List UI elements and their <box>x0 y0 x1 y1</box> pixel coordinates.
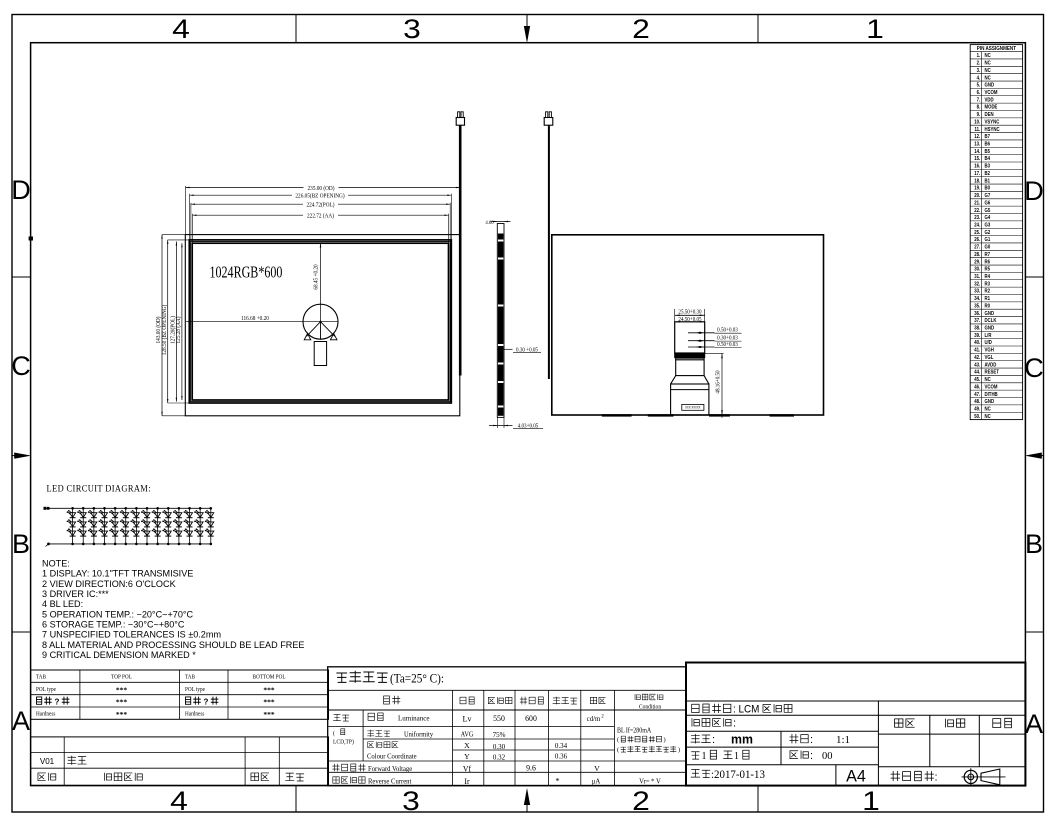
svg-text:B5: B5 <box>985 148 991 155</box>
svg-text:BOTTOM POL: BOTTOM POL <box>252 674 286 680</box>
svg-text:Colour Coordinate: Colour Coordinate <box>367 752 417 760</box>
svg-text:6.: 6. <box>977 90 981 97</box>
svg-text::: : <box>810 734 813 746</box>
svg-text:R2: R2 <box>985 288 991 295</box>
svg-text::: : <box>935 771 938 783</box>
svg-text:DCLK: DCLK <box>985 318 997 325</box>
svg-text:46.: 46. <box>974 384 981 391</box>
svg-text:19.: 19. <box>974 185 981 192</box>
svg-text:23.: 23. <box>974 215 981 222</box>
svg-text:: LCM: : LCM <box>733 704 759 716</box>
svg-text:18.: 18. <box>974 178 981 185</box>
svg-text:R1: R1 <box>985 296 991 303</box>
svg-text:GND: GND <box>985 310 995 317</box>
svg-text::2017-01-13: :2017-01-13 <box>711 769 765 781</box>
svg-text:40.: 40. <box>974 340 981 347</box>
svg-text:(: ( <box>617 747 619 754</box>
svg-text:75%: 75% <box>493 729 506 738</box>
svg-text:DITHB: DITHB <box>985 391 999 398</box>
svg-text:B4: B4 <box>985 156 991 163</box>
svg-text:U/D: U/D <box>985 340 993 347</box>
svg-text:Y: Y <box>464 752 470 761</box>
svg-text:G1: G1 <box>985 237 991 244</box>
svg-text:Hardness: Hardness <box>185 711 204 717</box>
svg-text:10.: 10. <box>974 119 981 126</box>
svg-text:B: B <box>12 529 30 559</box>
svg-text:4 BL LED:: 4 BL LED: <box>42 599 83 609</box>
svg-text:R6: R6 <box>985 259 991 266</box>
svg-text:***: *** <box>263 710 275 719</box>
svg-text:42.: 42. <box>974 355 981 362</box>
svg-text:3: 3 <box>403 14 421 44</box>
svg-text:30.: 30. <box>974 266 981 273</box>
svg-text:RESET: RESET <box>985 369 999 376</box>
svg-text:X: X <box>464 741 470 750</box>
svg-text:49.: 49. <box>974 406 981 413</box>
svg-text:44.: 44. <box>974 369 981 376</box>
svg-text:VSYNC: VSYNC <box>985 119 1000 126</box>
svg-text:Luminance: Luminance <box>398 713 430 722</box>
svg-text:A: A <box>1025 709 1043 739</box>
svg-text:R5: R5 <box>985 266 991 273</box>
svg-text:MODE: MODE <box>985 104 999 111</box>
svg-text:16.: 16. <box>974 163 981 170</box>
svg-text:GND: GND <box>985 325 995 332</box>
svg-text:25.50+0.30: 25.50+0.30 <box>678 309 701 315</box>
svg-text:226.05(BZ OPENING): 226.05(BZ OPENING) <box>295 192 344 200</box>
svg-text:D: D <box>1024 176 1044 206</box>
svg-text:LED CIRCUIT DIAGRAM:: LED CIRCUIT DIAGRAM: <box>47 483 151 493</box>
svg-text:00: 00 <box>822 751 833 762</box>
svg-text:VGL: VGL <box>985 355 994 362</box>
svg-text:0.32: 0.32 <box>493 752 506 761</box>
svg-text:1.: 1. <box>977 53 981 60</box>
svg-text:G7: G7 <box>985 193 991 200</box>
svg-text:39.: 39. <box>974 332 981 339</box>
svg-text:NC: NC <box>985 377 992 384</box>
svg-text:***: *** <box>263 685 275 694</box>
svg-text:116.68 +0.20: 116.68 +0.20 <box>241 316 269 322</box>
svg-text:5.: 5. <box>977 82 981 89</box>
svg-text:Forward Voltage: Forward Voltage <box>368 765 412 773</box>
svg-text:Condition: Condition <box>639 704 661 710</box>
svg-text:37.: 37. <box>974 318 981 325</box>
svg-text:48.: 48. <box>974 399 981 406</box>
svg-text:POL type: POL type <box>185 687 205 693</box>
svg-text:B6: B6 <box>985 141 991 148</box>
svg-text:12.: 12. <box>974 134 981 141</box>
svg-text:cd/m: cd/m <box>587 715 601 723</box>
svg-text:2 VIEW DIRECTION:6 O'CLOCK: 2 VIEW DIRECTION:6 O'CLOCK <box>42 579 176 589</box>
svg-text:G3: G3 <box>985 222 991 229</box>
svg-text:8.: 8. <box>977 104 981 111</box>
svg-text:Hardness: Hardness <box>36 711 55 717</box>
svg-text:24.: 24. <box>974 222 981 229</box>
svg-text:26.: 26. <box>974 237 981 244</box>
svg-text:4: 4 <box>172 14 190 44</box>
svg-text:(: ( <box>333 730 335 737</box>
svg-text:235.00 (OD): 235.00 (OD) <box>308 184 335 192</box>
svg-text:38.: 38. <box>974 325 981 332</box>
svg-text:9.: 9. <box>977 112 981 119</box>
svg-text:NC: NC <box>985 68 992 75</box>
svg-text:***: *** <box>116 698 128 707</box>
svg-text:NC: NC <box>985 413 992 420</box>
svg-text:V: V <box>594 764 600 773</box>
svg-text:1 DISPLAY: 10.1"TFT TRANSMI: 1 DISPLAY: 10.1"TFT TRANSMISIVE <box>42 569 193 579</box>
svg-text:): ) <box>664 737 666 744</box>
svg-text:2: 2 <box>632 14 650 44</box>
svg-text:550: 550 <box>493 714 505 723</box>
svg-text:224.72(POL): 224.72(POL) <box>307 201 335 209</box>
svg-text:B2: B2 <box>985 171 991 178</box>
svg-text:C: C <box>11 351 31 381</box>
svg-text:7.: 7. <box>977 97 981 104</box>
svg-text:TAB: TAB <box>185 674 195 680</box>
svg-text:XXX-XXXXX: XXX-XXXXX <box>685 405 700 409</box>
svg-text:29.: 29. <box>974 259 981 266</box>
svg-text::: : <box>712 734 715 746</box>
svg-text:C: C <box>1024 353 1044 383</box>
svg-text:?: ? <box>204 697 209 706</box>
svg-text:mm: mm <box>731 732 753 746</box>
svg-text:(Ta=25° C):: (Ta=25° C): <box>390 671 444 686</box>
svg-text:GND: GND <box>985 82 995 89</box>
svg-text:A: A <box>12 706 30 736</box>
svg-text:11.: 11. <box>974 126 980 133</box>
svg-text:G6: G6 <box>985 200 991 207</box>
svg-text:NC: NC <box>985 75 992 82</box>
svg-text::: : <box>733 718 736 730</box>
svg-text:2: 2 <box>601 715 604 720</box>
svg-text:Vf: Vf <box>463 764 472 773</box>
svg-text:VDD: VDD <box>985 97 995 104</box>
svg-text:G0: G0 <box>985 244 991 251</box>
svg-text:R4: R4 <box>985 274 991 281</box>
svg-text:1: 1 <box>734 751 739 762</box>
svg-text:B3: B3 <box>985 163 991 170</box>
svg-text:28.: 28. <box>974 252 981 259</box>
svg-text:32.: 32. <box>974 281 981 288</box>
svg-text:R0: R0 <box>985 303 991 310</box>
svg-text:0.30: 0.30 <box>493 741 506 750</box>
svg-text:3.: 3. <box>977 68 981 75</box>
svg-text:μA: μA <box>592 777 601 785</box>
svg-text:?: ? <box>55 697 60 706</box>
svg-text:17.: 17. <box>974 171 981 178</box>
svg-text:Vr= * V: Vr= * V <box>639 777 661 785</box>
svg-text:B0: B0 <box>985 185 991 192</box>
svg-text:14.: 14. <box>974 148 981 155</box>
svg-text:Uniformity: Uniformity <box>404 731 434 738</box>
svg-text:35.: 35. <box>974 303 981 310</box>
svg-text:1:1: 1:1 <box>836 734 850 746</box>
svg-text:B: B <box>1025 529 1043 559</box>
svg-text:5 OPERATION TEMP.: −20°C~+7: 5 OPERATION TEMP.: −20°C~+70°C <box>42 609 193 619</box>
svg-text:G2: G2 <box>985 229 991 236</box>
svg-text:4: 4 <box>170 786 188 816</box>
svg-text:9 CRITICAL DEMENSION MARKED: 9 CRITICAL DEMENSION MARKED * <box>42 650 196 660</box>
svg-text:VCOM: VCOM <box>985 90 998 97</box>
svg-text:125.28 (AA): 125.28 (AA) <box>175 316 183 343</box>
svg-text:2.: 2. <box>977 60 981 67</box>
svg-text:45.: 45. <box>974 377 981 384</box>
svg-text:***: *** <box>116 710 128 719</box>
svg-text:***: *** <box>263 698 275 707</box>
svg-text:34.: 34. <box>974 296 981 303</box>
svg-text:22.: 22. <box>974 207 981 214</box>
svg-text:G4: G4 <box>985 215 991 222</box>
svg-text:NOTE:: NOTE: <box>42 558 70 568</box>
svg-text:33.: 33. <box>974 288 981 295</box>
svg-text:NC: NC <box>985 60 992 67</box>
svg-text:(: ( <box>617 737 619 744</box>
svg-text:***: *** <box>116 685 128 694</box>
svg-text:31.: 31. <box>974 274 981 281</box>
svg-text:2: 2 <box>632 786 650 816</box>
svg-text:4.60: 4.60 <box>485 219 494 225</box>
svg-text:36.: 36. <box>974 310 981 317</box>
svg-text:7 UNSPECIFIED TOLERANCES IS: 7 UNSPECIFIED TOLERANCES IS ±0.2mm <box>42 630 221 640</box>
svg-text:Ir: Ir <box>464 777 470 786</box>
svg-text:8 ALL MATERIAL AND PROCESS: 8 ALL MATERIAL AND PROCESSING SHOULD BE … <box>42 640 304 650</box>
svg-text:6 STORAGE TEMP.: −30°C~+80°: 6 STORAGE TEMP.: −30°C~+80°C <box>42 619 185 629</box>
svg-text:LCD,TP): LCD,TP) <box>333 738 354 745</box>
svg-text:27.: 27. <box>974 244 981 251</box>
svg-text:POL type: POL type <box>36 687 56 693</box>
svg-text:47.: 47. <box>974 391 981 398</box>
svg-text:L/R: L/R <box>985 332 992 339</box>
svg-text:A4: A4 <box>846 766 866 785</box>
svg-text:G5: G5 <box>985 207 991 214</box>
svg-text:41.: 41. <box>974 347 981 354</box>
svg-text:NC: NC <box>985 406 992 413</box>
svg-text:R3: R3 <box>985 281 991 288</box>
svg-text:TAB: TAB <box>36 674 46 680</box>
svg-text:*: * <box>555 776 559 786</box>
svg-text:68.45 +0.20: 68.45 +0.20 <box>313 264 319 289</box>
svg-text:1: 1 <box>862 786 880 816</box>
svg-text:Lv: Lv <box>463 714 473 723</box>
svg-text:24.50+0.05: 24.50+0.05 <box>678 317 701 323</box>
svg-text:21.: 21. <box>974 200 981 207</box>
svg-text:B7: B7 <box>985 134 991 141</box>
svg-text:Reverse Current: Reverse Current <box>368 777 411 785</box>
svg-text:0.36: 0.36 <box>555 751 568 760</box>
svg-text:B1: B1 <box>985 178 991 185</box>
svg-text:R7: R7 <box>985 252 991 259</box>
svg-text:9.6: 9.6 <box>526 763 536 772</box>
svg-text:1024RGB*600: 1024RGB*600 <box>210 264 283 282</box>
svg-text:20.: 20. <box>974 193 981 200</box>
svg-text:0.50+0.03: 0.50+0.03 <box>717 327 738 333</box>
svg-text:AVG: AVG <box>461 731 474 738</box>
svg-text:25.: 25. <box>974 229 981 236</box>
svg-text:13.: 13. <box>974 141 981 148</box>
svg-text:): ) <box>678 747 680 754</box>
svg-text:128.50 (BZ OPENING): 128.50 (BZ OPENING) <box>161 305 169 356</box>
svg-text:D: D <box>11 175 31 205</box>
svg-text:600: 600 <box>525 714 537 723</box>
svg-text:4.: 4. <box>977 75 981 82</box>
svg-text:15.: 15. <box>974 156 981 163</box>
svg-text:3 DRIVER IC:***: 3 DRIVER IC:*** <box>42 589 109 599</box>
svg-text:V01: V01 <box>40 756 55 766</box>
svg-text:AVDD: AVDD <box>985 362 997 369</box>
svg-text:HSYNC: HSYNC <box>985 126 1000 133</box>
svg-text:222.72 (AA): 222.72 (AA) <box>307 212 334 220</box>
svg-text:BL If=280mA: BL If=280mA <box>617 727 652 734</box>
svg-text:3: 3 <box>402 786 420 816</box>
svg-text:1: 1 <box>702 751 707 762</box>
svg-text:VCOM: VCOM <box>985 384 998 391</box>
svg-text:VGH: VGH <box>985 347 995 354</box>
svg-text:0.34: 0.34 <box>555 740 568 749</box>
svg-text:50.: 50. <box>974 413 981 420</box>
svg-text:DEN: DEN <box>985 112 995 119</box>
svg-text:43.: 43. <box>974 362 981 369</box>
svg-text:NC: NC <box>985 53 992 60</box>
svg-text:TOP POL: TOP POL <box>111 674 132 680</box>
svg-text:GND: GND <box>985 399 995 406</box>
svg-text:48.16+0.50: 48.16+0.50 <box>715 370 721 393</box>
svg-text::: : <box>810 750 813 762</box>
svg-text:1: 1 <box>866 14 884 44</box>
